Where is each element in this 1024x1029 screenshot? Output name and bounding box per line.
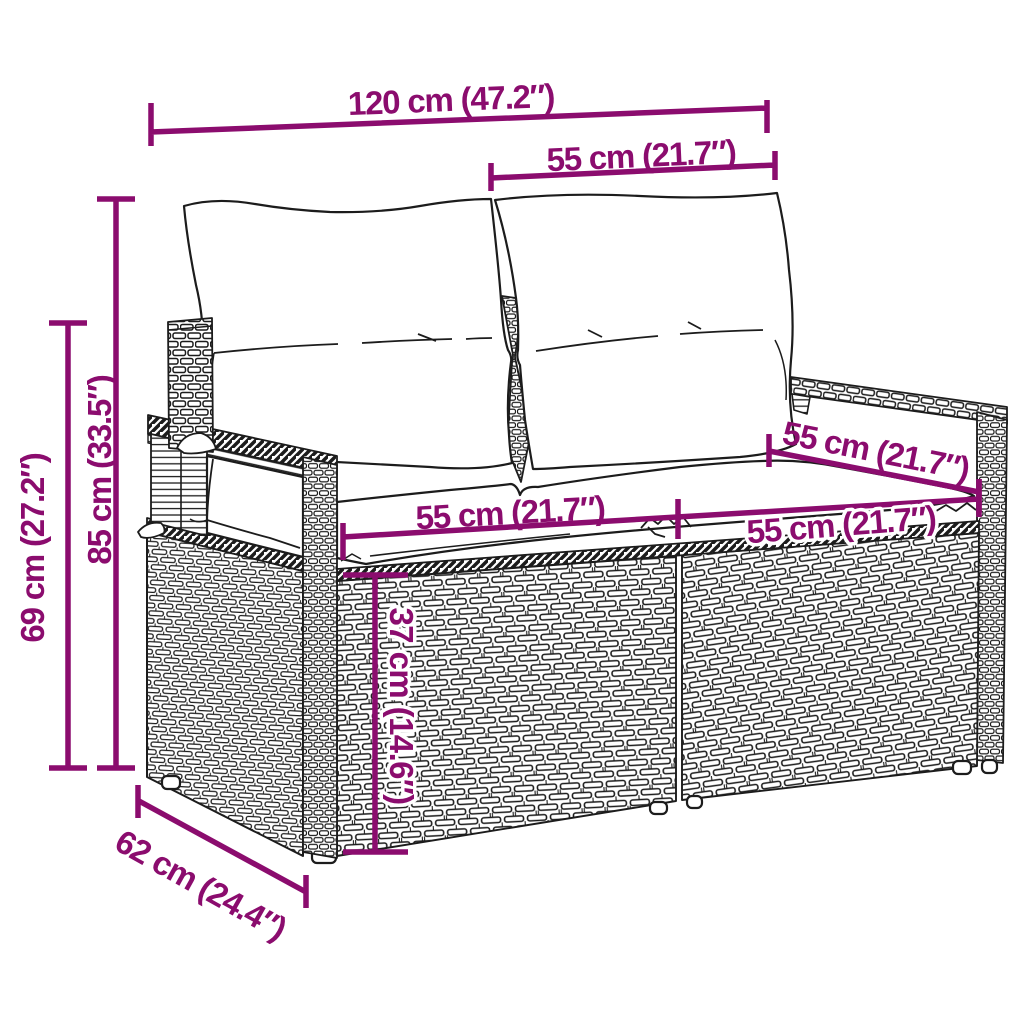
svg-text:69 cm (27.2″): 69 cm (27.2″) — [14, 453, 51, 642]
svg-text:85 cm (33.5″): 85 cm (33.5″) — [81, 375, 118, 564]
svg-text:37 cm (14.6″): 37 cm (14.6″) — [383, 608, 420, 805]
